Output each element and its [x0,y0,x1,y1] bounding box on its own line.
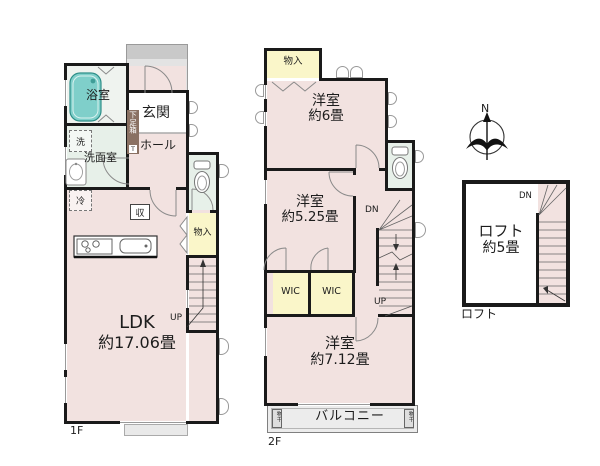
wall-segment [264,78,267,406]
wall-segment [412,140,415,406]
washer-label: 洗 [76,135,85,148]
ldk-label: LDK 約17.06畳 [77,313,197,352]
window [264,85,267,99]
compass-n-label: N [481,103,489,116]
wic1-label: WIC [273,287,308,298]
wall-segment [536,213,539,305]
loft-stairs-fill [538,184,566,303]
entry-step [124,424,188,436]
room-toilet-2f [388,143,412,188]
wall-segment [385,140,415,143]
balcony-label: バルコニー [302,410,398,425]
window [64,147,67,175]
wall-segment [264,48,322,51]
ldk-area: 約17.06畳 [77,334,197,352]
room6-label: 洋室 約6畳 [286,93,366,125]
door-flap [415,222,426,238]
porch-band [127,45,187,59]
window [120,421,186,424]
fridge-box: 冷 [69,190,92,211]
floor-plan: 洗 冷 収 下足箱 T 物干 物干 浴室 玄関 ホール 洗面室 物入 UP LD… [0,0,600,466]
wall-segment [264,168,356,171]
window-flap [189,101,198,114]
room525-area: 約5.25畳 [264,210,356,226]
loft-room-label: ロフト 約5畳 [466,223,536,256]
wall-segment [319,48,322,81]
laundry-right-label: 物干 [407,411,413,422]
laundry-hook-right: 物干 [404,409,414,428]
wall-segment [64,123,129,126]
fridge-label: 冷 [76,194,85,207]
wall-segment [64,63,129,66]
wall-segment [319,78,388,81]
compass-north-icon [466,112,508,160]
wall-segment [264,314,355,317]
window [298,403,370,406]
loft-area: 約5畳 [466,240,536,256]
laundry-hook-left: 物干 [272,409,282,428]
wic2-label: WIC [311,287,352,298]
window-flap [189,124,198,137]
window-flap [350,66,363,78]
loft-name: ロフト [466,223,536,240]
window [186,290,189,308]
wall-segment [210,210,219,213]
wall-segment [385,188,415,191]
window [64,344,67,370]
room712-name: 洋室 [288,335,392,352]
shoe-box-t-label: T [129,145,137,153]
stairs-2f-dn-label: DN [365,205,379,215]
closet-2f-label: 物入 [267,57,319,68]
wall-segment [186,210,192,213]
stairs-2f-up-label: UP [374,297,386,307]
room6-area: 約6畳 [286,109,366,125]
room525-name: 洋室 [264,194,356,210]
wall-segment [379,168,388,171]
wall-segment [126,90,189,93]
laundry-left-label: 物干 [275,411,281,422]
window-flap [388,92,397,105]
wall-segment [352,273,355,317]
shoe-box: 下足箱 T [127,110,139,154]
window-flap [415,150,424,163]
window [264,328,267,356]
ldk-name: LDK [77,313,197,334]
window-flap [388,115,397,128]
washroom-label: 洗面室 [84,152,117,165]
window-flap [255,111,264,124]
floor1-label: 1F [70,425,83,438]
room6-name: 洋室 [286,93,366,109]
hall-label: ホール [140,139,176,153]
window [64,377,67,403]
storage-label: 収 [135,206,144,219]
wall-segment [378,314,415,317]
room-toilet-1f [189,155,216,210]
window [264,112,267,126]
storage-box: 収 [130,204,150,220]
shoe-box-label: 下足箱 [129,111,137,134]
wall-segment [186,255,219,258]
washer-box: 洗 [69,130,92,152]
window-flap [336,66,349,78]
entrance-label: 玄関 [142,105,170,121]
room525-label: 洋室 約5.25畳 [264,194,356,226]
stairs-loft-dn-label: DN [519,192,532,202]
wall-segment [216,152,219,424]
window [64,80,67,106]
window-flap [219,164,229,178]
wall-segment [353,168,356,175]
wall-segment [176,187,189,190]
loft-caption: ロフト [461,308,497,322]
door-flap [219,398,229,415]
bath-label: 浴室 [86,89,110,103]
closet-1f-label: 物入 [189,228,216,238]
wall-segment [186,255,189,290]
door-flap [219,338,229,355]
room712-area: 約7.12畳 [288,352,392,368]
wall-segment [186,152,219,155]
wall-segment [376,228,379,286]
floor2-label: 2F [268,436,281,449]
window-flap [255,84,264,97]
room712-label: 洋室 約7.12畳 [288,335,392,368]
